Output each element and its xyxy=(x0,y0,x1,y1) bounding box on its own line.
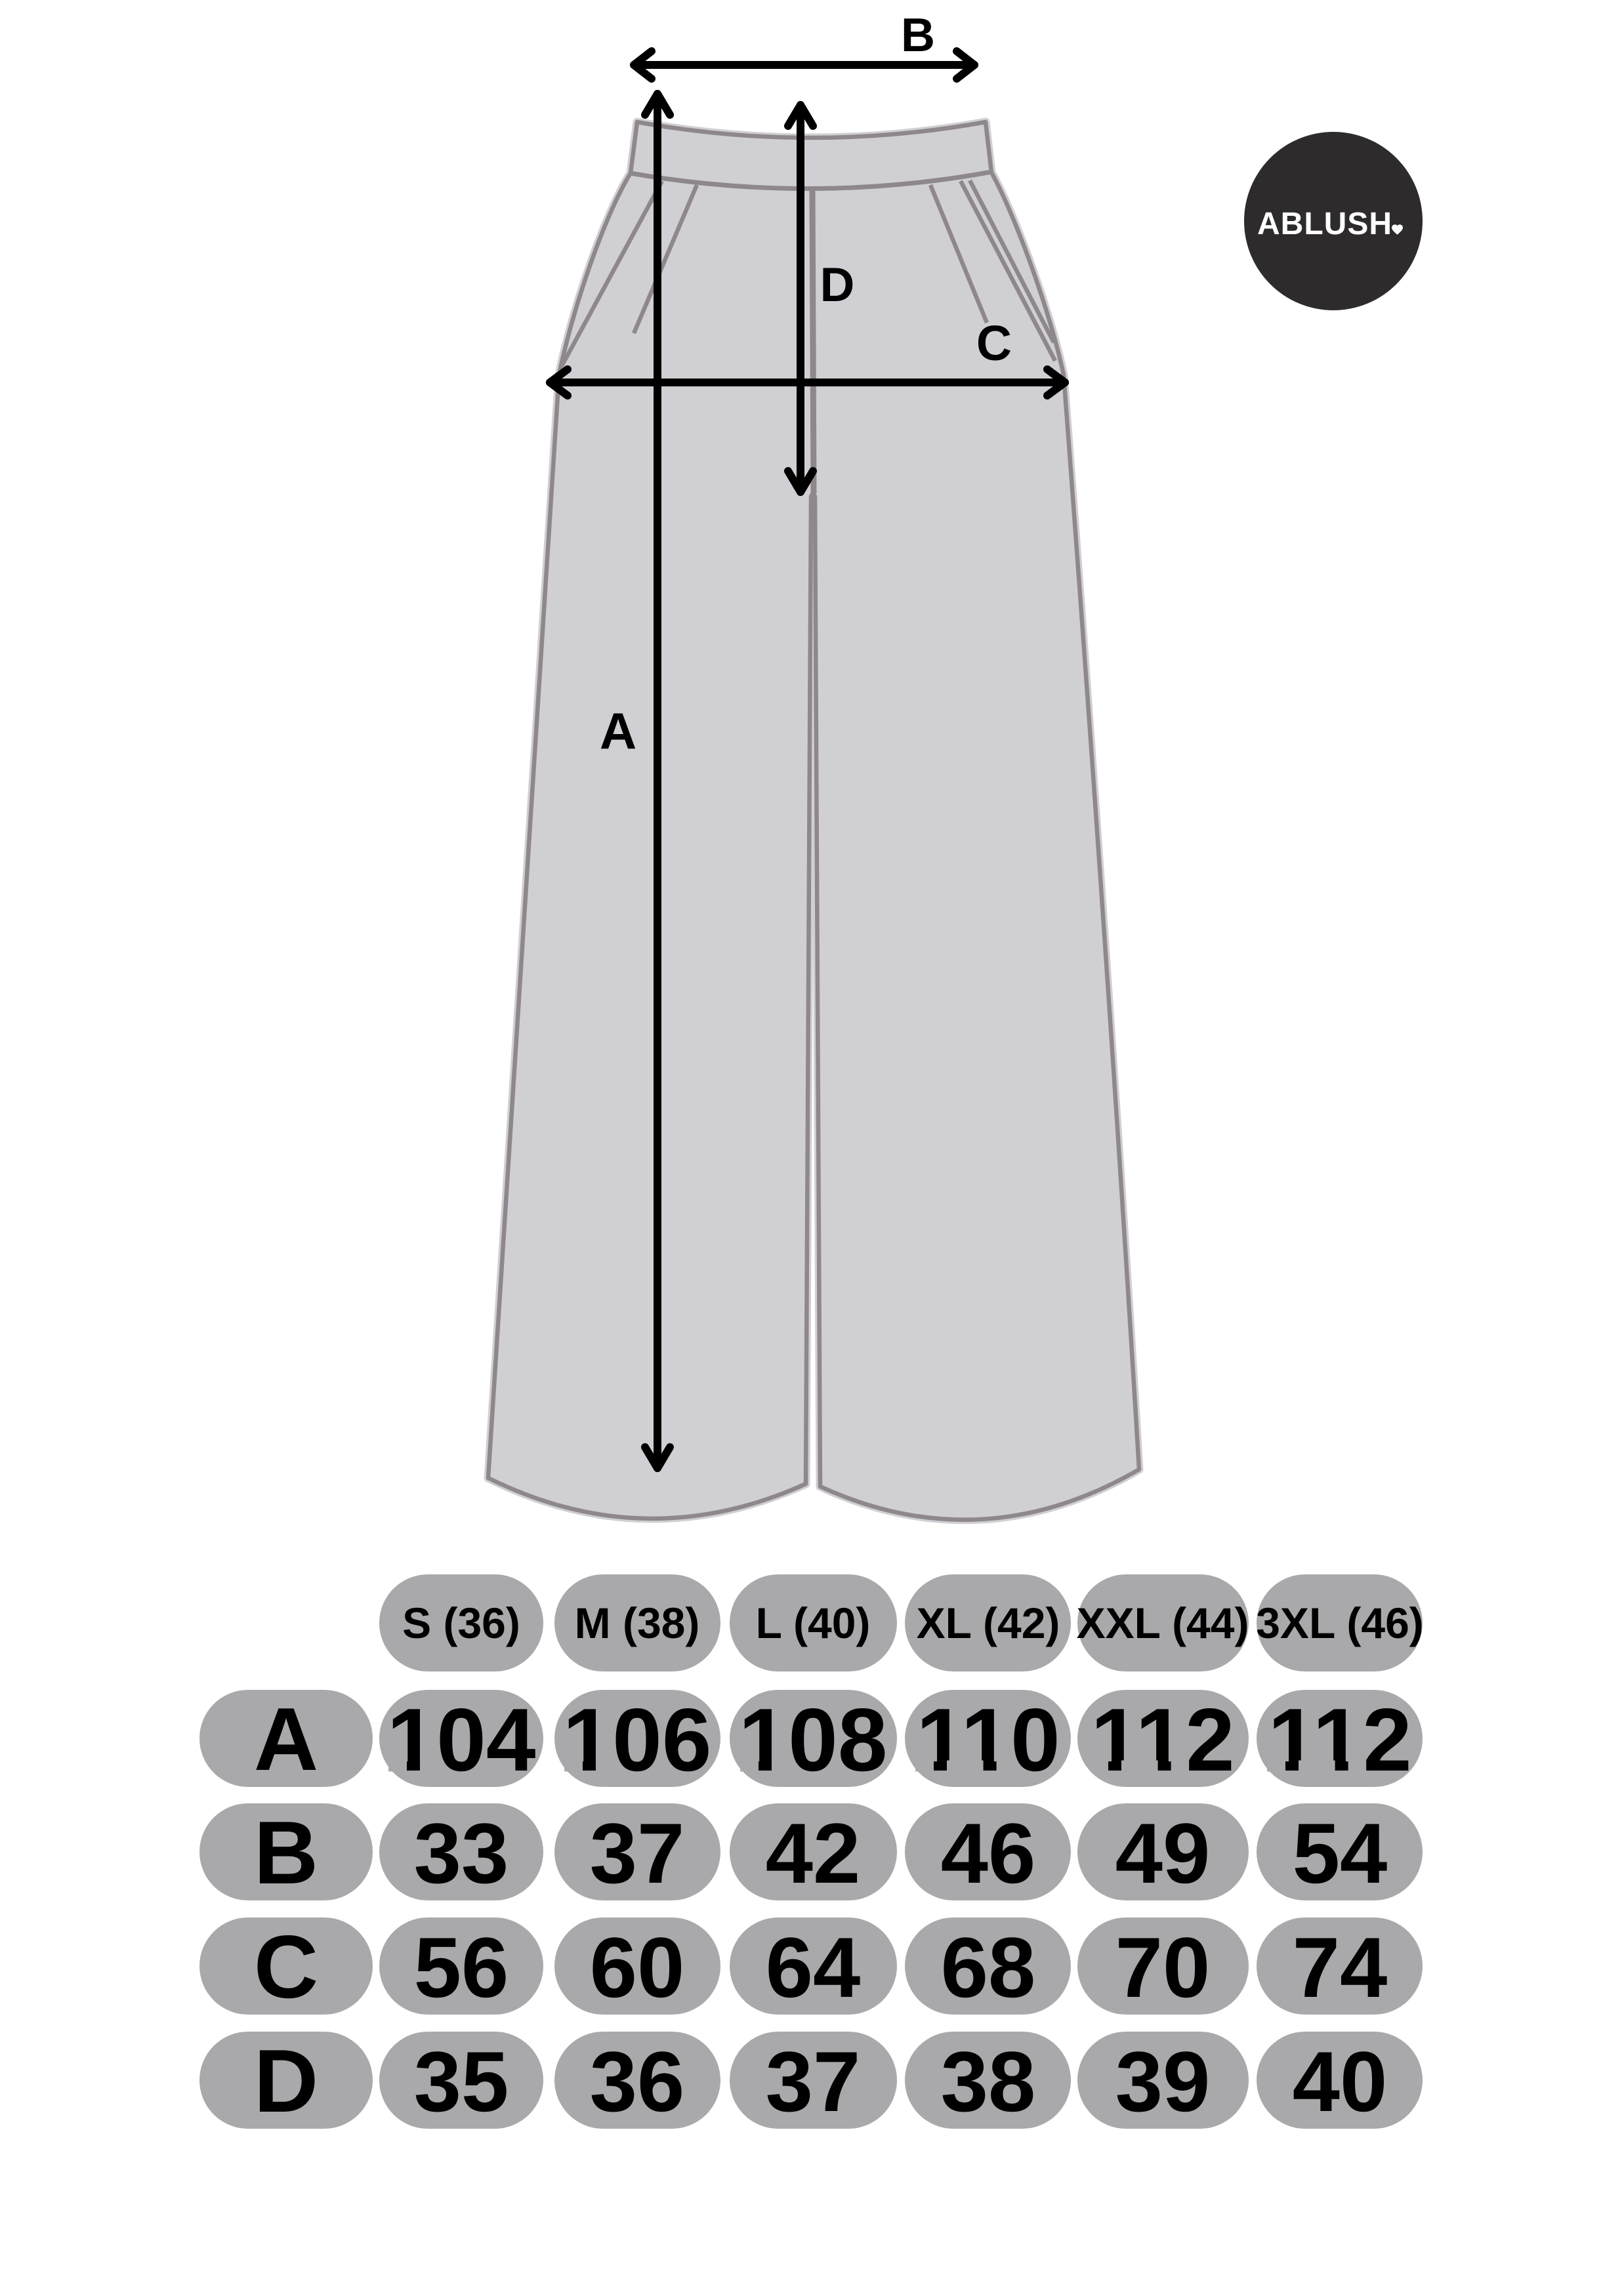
svg-text:46: 46 xyxy=(941,1805,1036,1901)
svg-text:39: 39 xyxy=(1115,2034,1211,2129)
svg-text:XXL (44): XXL (44) xyxy=(1077,1599,1249,1647)
svg-text:60: 60 xyxy=(590,1919,685,2015)
svg-text:54: 54 xyxy=(1293,1805,1388,1901)
svg-text:3XL (46): 3XL (46) xyxy=(1256,1599,1424,1647)
svg-text:L (40): L (40) xyxy=(756,1599,871,1647)
svg-text:C: C xyxy=(254,1917,318,2017)
svg-text:70: 70 xyxy=(1115,1919,1211,2015)
svg-text:112: 112 xyxy=(1091,1690,1234,1790)
svg-text:56: 56 xyxy=(414,1919,509,2015)
svg-text:112: 112 xyxy=(1268,1690,1411,1790)
svg-text:ABLUSH: ABLUSH xyxy=(1257,207,1392,241)
svg-text:M (38): M (38) xyxy=(575,1599,700,1647)
svg-text:64: 64 xyxy=(766,1919,861,2015)
svg-text:74: 74 xyxy=(1293,1919,1388,2015)
svg-text:D: D xyxy=(254,2031,318,2131)
svg-text:D: D xyxy=(820,258,855,312)
svg-text:C: C xyxy=(976,316,1012,371)
svg-text:110: 110 xyxy=(916,1690,1060,1790)
svg-text:S (36): S (36) xyxy=(402,1599,520,1647)
svg-text:104: 104 xyxy=(387,1690,536,1790)
svg-text:40: 40 xyxy=(1293,2034,1388,2129)
svg-text:A: A xyxy=(254,1689,318,1789)
svg-text:XL (42): XL (42) xyxy=(917,1599,1060,1647)
svg-text:68: 68 xyxy=(941,1919,1036,2015)
svg-text:106: 106 xyxy=(563,1690,712,1790)
svg-text:A: A xyxy=(600,702,636,760)
svg-text:108: 108 xyxy=(739,1690,888,1790)
svg-text:36: 36 xyxy=(590,2034,685,2129)
svg-text:37: 37 xyxy=(766,2034,861,2129)
svg-text:49: 49 xyxy=(1115,1805,1211,1901)
svg-text:35: 35 xyxy=(414,2034,509,2129)
svg-text:33: 33 xyxy=(414,1805,509,1901)
svg-text:42: 42 xyxy=(766,1805,861,1901)
svg-text:B: B xyxy=(901,9,935,62)
svg-text:B: B xyxy=(254,1803,318,1902)
svg-text:37: 37 xyxy=(590,1805,685,1901)
svg-text:38: 38 xyxy=(941,2034,1036,2129)
